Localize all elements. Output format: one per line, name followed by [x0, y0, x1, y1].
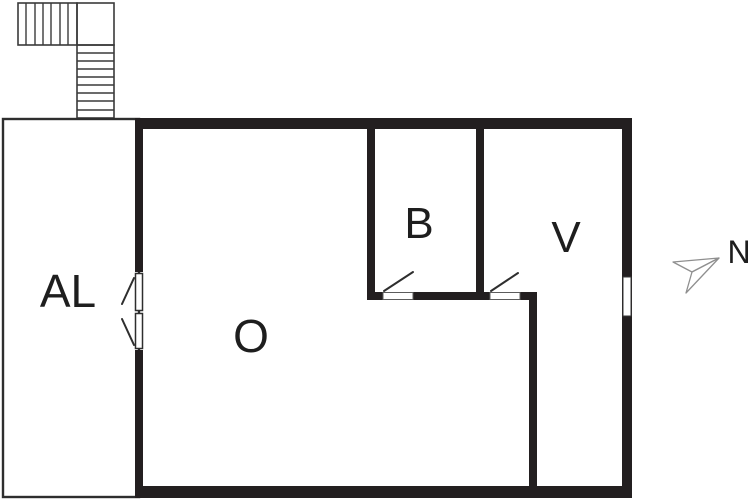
door-v-swing	[491, 273, 518, 291]
wall-bottom	[135, 486, 632, 498]
wall-left-lower	[135, 350, 143, 498]
staircase-lower-run	[77, 45, 114, 118]
room-label-v: V	[551, 213, 581, 262]
wall-room-b-v-divider	[476, 129, 484, 292]
door-al-upper-leaf	[136, 274, 143, 311]
wall-corridor-seg-1	[367, 292, 383, 300]
staircase	[18, 3, 114, 118]
wall-step-vertical	[529, 292, 537, 486]
exterior-walls	[135, 118, 632, 498]
staircase-upper-run	[18, 3, 77, 45]
door-al-upper-swing	[122, 278, 134, 304]
floor-plan-drawing: AL O B V N	[0, 0, 750, 500]
wall-corridor-seg-2	[413, 292, 492, 300]
room-label-b: B	[404, 199, 433, 248]
window-pane	[623, 277, 631, 316]
wall-left-upper	[135, 118, 143, 272]
floor-plan-canvas: AL O B V N	[0, 0, 750, 500]
staircase-landing	[77, 3, 114, 45]
door-v-threshold	[490, 293, 520, 300]
wall-room-b-left	[367, 129, 375, 292]
room-label-o: O	[233, 310, 269, 362]
interior-walls	[367, 129, 537, 486]
door-al-lower-swing	[122, 319, 134, 345]
room-label-al: AL	[40, 265, 96, 317]
door-b	[383, 272, 413, 300]
window	[623, 277, 631, 316]
stair-treads	[26, 3, 68, 45]
north-label: N	[727, 234, 750, 270]
door-v	[490, 273, 520, 300]
door-al	[122, 274, 143, 349]
stair-treads	[77, 53, 114, 110]
north-compass: N	[673, 234, 750, 293]
door-al-lower-leaf	[136, 314, 143, 349]
door-b-swing	[384, 272, 413, 291]
door-b-threshold	[383, 293, 413, 300]
wall-top	[135, 118, 632, 129]
